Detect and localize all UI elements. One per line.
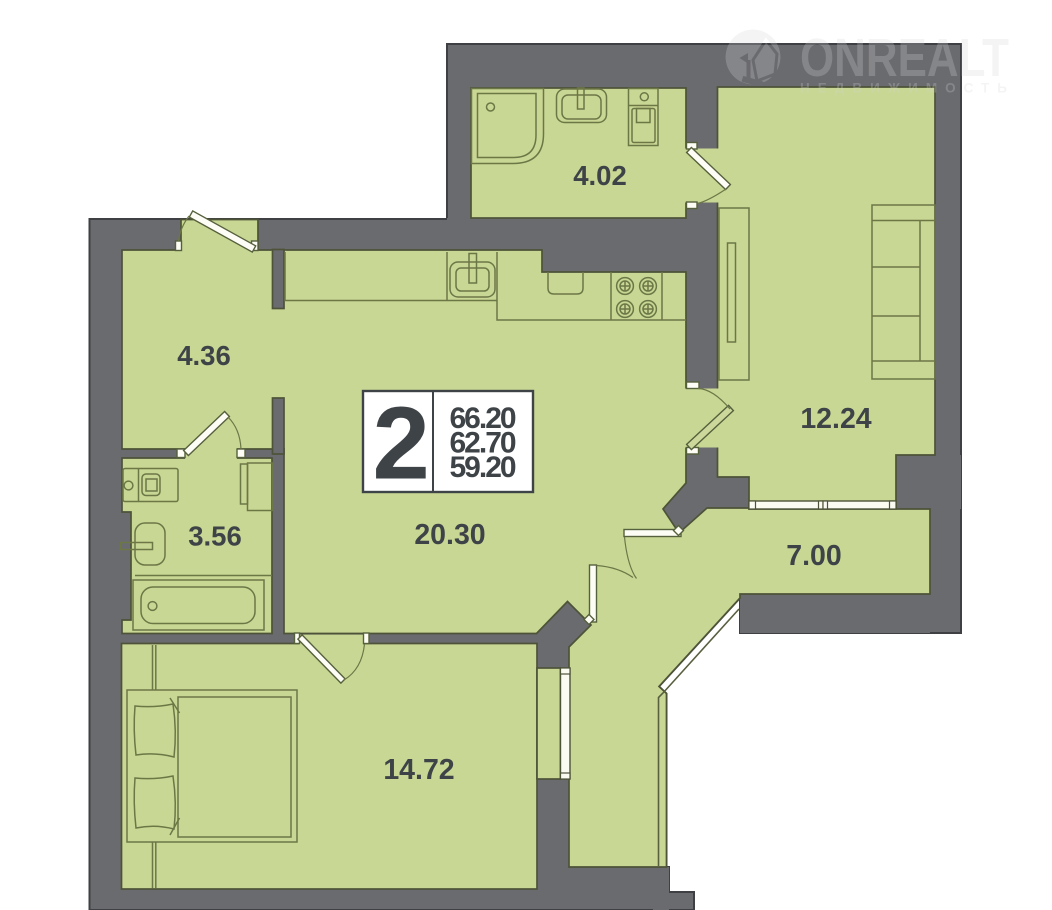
svg-text:3.56: 3.56 [188,521,242,552]
svg-text:12.24: 12.24 [800,403,871,435]
svg-text:20.30: 20.30 [414,519,485,551]
svg-text:4.36: 4.36 [177,340,231,371]
svg-text:ONREALT: ONREALT [800,28,1009,88]
svg-text:4.02: 4.02 [573,160,627,191]
svg-text:59.20: 59.20 [450,451,516,484]
svg-text:7.00: 7.00 [786,540,841,572]
svg-text:2: 2 [373,386,430,501]
svg-text:14.72: 14.72 [383,754,454,786]
